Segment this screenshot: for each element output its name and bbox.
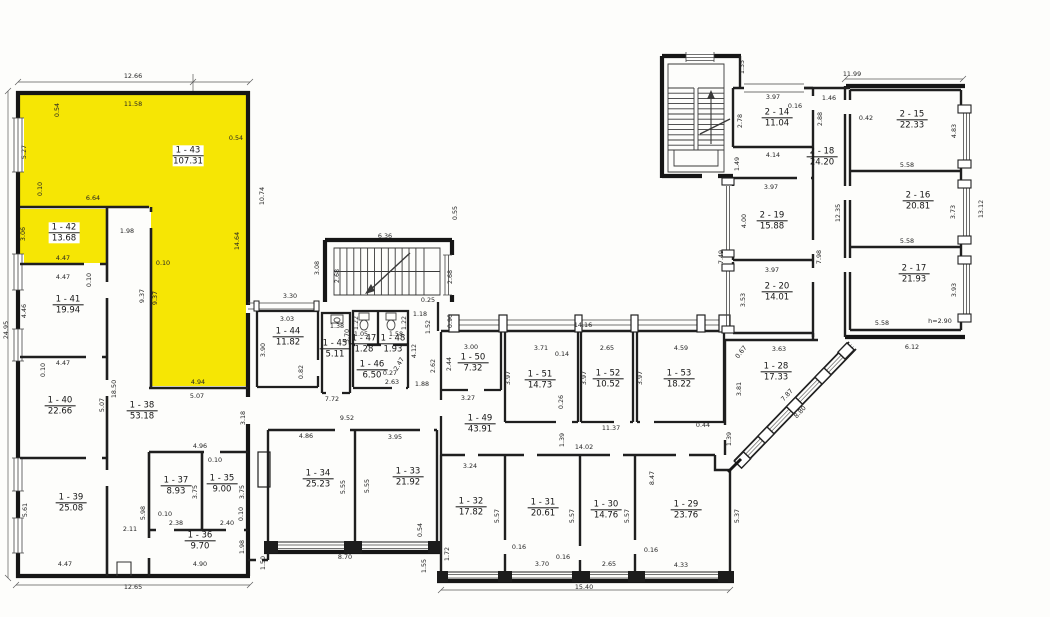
dimension-text: 2.62 [429, 359, 437, 373]
dimension-text: 0.42 [859, 114, 873, 122]
room-2-20-label: 2 - 2014.01 [762, 281, 793, 302]
dimension-text: 0.67 [733, 344, 748, 360]
dimension-text: 7.49 [717, 250, 725, 264]
dimension-text: 3.95 [388, 433, 402, 441]
dimension-text: 4.90 [193, 560, 207, 568]
floor-plan: 1 - 43107.311 - 4213.681 - 4119.941 - 40… [0, 0, 1050, 617]
dimension-text: 4.46 [20, 304, 28, 318]
dimension-text: 3.00 [464, 343, 478, 351]
room-1-28-label: 1 - 2817.33 [761, 361, 792, 382]
dimension-text: 3.81 [735, 382, 743, 396]
dimension-text: 5.58 [900, 237, 914, 245]
dimension-text: 10.74 [258, 187, 266, 205]
dimension-text: 4.12 [410, 344, 418, 358]
dimension-text: 2.11 [123, 525, 137, 533]
dimension-text: 1.05 [354, 330, 368, 338]
dimension-text: 1.39 [725, 432, 733, 446]
dimension-text: 1.52 [424, 320, 432, 334]
dimension-text: 3.30 [283, 292, 297, 300]
dimension-text: 4.59 [674, 344, 688, 352]
dimension-text: 5.58 [875, 319, 889, 327]
dimension-text: 0.44 [696, 421, 710, 429]
room-1-42-label: 1 - 4213.68 [49, 222, 80, 243]
room-1-53-label: 1 - 5318.22 [664, 368, 695, 389]
dimension-text: 1.98 [120, 227, 134, 235]
dimension-text: 3.97 [636, 371, 644, 385]
dimension-text: 0.10 [237, 507, 245, 521]
room-2-17-label: 2 - 1721.93 [899, 263, 930, 284]
room-1-44-label: 1 - 4411.82 [273, 326, 304, 347]
dimension-text: 1.72 [443, 547, 451, 561]
dimension-text: 5.57 [568, 509, 576, 523]
dimension-text: 14.16 [574, 321, 592, 329]
room-1-38-label: 1 - 3853.18 [127, 400, 158, 421]
dimension-text: 2.88 [816, 112, 824, 126]
dimension-text: 3.73 [949, 205, 957, 219]
dimension-text: 14.64 [233, 232, 241, 250]
dimension-text: 4.47 [56, 254, 70, 262]
dimension-text: 1.38 [330, 322, 344, 330]
room-1-41-label: 1 - 4119.94 [53, 294, 84, 315]
dimension-text: 0.26 [557, 395, 565, 409]
dimension-text: 2.38 [169, 519, 183, 527]
dimension-text: 3.97 [765, 266, 779, 274]
dimension-text: 4.33 [674, 561, 688, 569]
dimension-text: 12.66 [124, 72, 142, 80]
dimension-text: 0.10 [208, 456, 222, 464]
dimension-text: 2.65 [602, 560, 616, 568]
dimension-text: 1.46 [822, 94, 836, 102]
room-1-52-label: 1 - 5210.52 [593, 368, 624, 389]
dimension-text: 3.24 [463, 462, 477, 470]
room-1-31-label: 1 - 3120.61 [528, 497, 559, 518]
dimension-text: 0.27 [383, 369, 397, 377]
room-1-35-label: 1 - 359.00 [207, 473, 238, 494]
dimension-text: 5.55 [363, 479, 371, 493]
room-2-15-label: 2 - 1522.33 [897, 109, 928, 130]
room-1-39-label: 1 - 3925.08 [56, 492, 87, 513]
dimension-text: 4.83 [950, 124, 958, 138]
dimension-text: 2.44 [445, 357, 453, 371]
room-1-40-label: 1 - 4022.66 [45, 395, 76, 416]
dimension-text: 18.50 [110, 380, 118, 398]
dimension-text: 4.00 [740, 214, 748, 228]
dimension-text: 8.47 [648, 471, 656, 485]
dimension-text: 12.35 [834, 204, 842, 222]
dimension-text: 13.12 [977, 200, 985, 218]
dimension-text: 6.64 [86, 194, 100, 202]
dimension-text: 7.72 [325, 395, 339, 403]
dimension-text: 0.14 [555, 350, 569, 358]
dimension-text: 0.10 [158, 510, 172, 518]
dimension-text: 1.22 [400, 316, 408, 330]
dimension-text: 7.98 [815, 250, 823, 264]
dimension-text: 5.07 [98, 398, 106, 412]
dimension-text: 0.16 [788, 102, 802, 110]
dimension-text: 14.02 [575, 443, 593, 451]
dimension-text: 5.58 [900, 161, 914, 169]
dimension-text: 11.99 [843, 70, 861, 78]
dimension-text: 2.68 [446, 270, 454, 284]
dimension-text: 5.61 [21, 503, 29, 517]
dimension-text: 3.97 [764, 183, 778, 191]
dimension-text: 11.58 [124, 100, 142, 108]
dimension-text: 1.58 [389, 330, 403, 338]
room-2-16-label: 2 - 1620.81 [903, 190, 934, 211]
room-1-50-label: 1 - 507.32 [458, 352, 489, 373]
dimension-text: 4.47 [58, 560, 72, 568]
dimension-text: 0.10 [36, 182, 44, 196]
dimension-text: 4.86 [299, 432, 313, 440]
dimension-text: 3.75 [191, 485, 199, 499]
dimension-text: 3.27 [461, 394, 475, 402]
dimension-text: 24.95 [2, 321, 10, 339]
dimension-text: 3.70 [535, 560, 549, 568]
dimension-text: 3.18 [239, 411, 247, 425]
dimension-text: 6.36 [378, 232, 392, 240]
dimension-text: 0.16 [556, 553, 570, 561]
dimension-text: h=2.90 [928, 317, 952, 325]
dimension-text: 1.18 [413, 310, 427, 318]
dimension-text: 3.93 [950, 283, 958, 297]
dimension-text: 9.37 [138, 289, 146, 303]
room-1-36-label: 1 - 369.70 [185, 530, 216, 551]
dimension-text: 0.54 [229, 134, 243, 142]
dimension-text: 0.25 [421, 296, 435, 304]
dimension-text: 5.07 [190, 392, 204, 400]
room-1-32-label: 1 - 3217.82 [456, 496, 487, 517]
room-1-37-label: 1 - 378.93 [161, 475, 192, 496]
dimension-text: 2.68 [333, 269, 341, 283]
dimension-text: 2.78 [736, 114, 744, 128]
labels-layer: 1 - 43107.311 - 4213.681 - 4119.941 - 40… [0, 0, 1050, 617]
dimension-text: 4.96 [193, 442, 207, 450]
dimension-text: 4.94 [191, 378, 205, 386]
room-1-30-label: 1 - 3014.76 [591, 499, 622, 520]
dimension-text: 3.97 [504, 371, 512, 385]
room-2-19-label: 2 - 1915.88 [757, 210, 788, 231]
dimension-text: 2.65 [600, 344, 614, 352]
dimension-text: 9.52 [340, 414, 354, 422]
dimension-text: 2.40 [220, 519, 234, 527]
dimension-text: 8.70 [338, 553, 352, 561]
dimension-text: 3.08 [313, 261, 321, 275]
dimension-text: 0.16 [512, 543, 526, 551]
dimension-text: 1.39 [558, 433, 566, 447]
dimension-text: 1.49 [733, 157, 741, 171]
room-1-51-label: 1 - 5114.73 [525, 369, 556, 390]
dimension-text: 6.12 [905, 343, 919, 351]
dimension-text: 9.37 [151, 291, 159, 305]
dimension-text: 4.14 [766, 151, 780, 159]
dimension-text: 1.35 [738, 60, 746, 74]
dimension-text: 3.63 [772, 345, 786, 353]
dimension-text: 0.10 [85, 273, 93, 287]
dimension-text: 15.40 [575, 583, 593, 591]
dimension-text: 0.54 [416, 523, 424, 537]
dimension-text: 2.63 [385, 378, 399, 386]
dimension-text: 0.82 [297, 365, 305, 379]
dimension-text: 5.98 [139, 506, 147, 520]
room-1-33-label: 1 - 3321.92 [393, 466, 424, 487]
dimension-text: 3.06 [19, 227, 27, 241]
dimension-text: 11.37 [602, 424, 620, 432]
dimension-text: 3.97 [580, 371, 588, 385]
dimension-text: 3.71 [534, 344, 548, 352]
dimension-text: 5.37 [733, 509, 741, 523]
dimension-text: 0.55 [451, 206, 459, 220]
dimension-text: 5.57 [493, 509, 501, 523]
dimension-text: 1.55 [420, 559, 428, 573]
dimension-text: 0.10 [156, 259, 170, 267]
dimension-text: 1.88 [415, 380, 429, 388]
dimension-text: 0.16 [644, 546, 658, 554]
dimension-text: 4.47 [56, 359, 70, 367]
dimension-text: 7.87 [779, 387, 795, 403]
room-1-34-label: 1 - 3425.23 [303, 468, 334, 489]
dimension-text: 0.54 [53, 103, 61, 117]
room-2-18-label: 2 - 1824.20 [807, 146, 838, 167]
dimension-text: 1.50 [259, 556, 267, 570]
dimension-text: 3.70 [343, 329, 351, 343]
dimension-text: 1.98 [238, 540, 246, 554]
dimension-text: 8.80 [792, 404, 808, 420]
dimension-text: 3.03 [280, 315, 294, 323]
dimension-text: 0.90 [446, 314, 454, 328]
dimension-text: 3.75 [238, 485, 246, 499]
dimension-text: 3.90 [259, 343, 267, 357]
dimension-text: 5.27 [20, 145, 28, 159]
dimension-text: 4.47 [56, 273, 70, 281]
room-1-43-label: 1 - 43107.31 [173, 145, 204, 166]
room-1-29-label: 1 - 2923.76 [671, 499, 702, 520]
dimension-text: 1.22 [352, 316, 360, 330]
dimension-text: 3.53 [739, 293, 747, 307]
dimension-text: 3.97 [766, 93, 780, 101]
dimension-text: 0.10 [39, 363, 47, 377]
dimension-text: 5.57 [623, 509, 631, 523]
dimension-text: 12.65 [124, 583, 142, 591]
room-2-14-label: 2 - 1411.04 [762, 107, 793, 128]
room-1-49-label: 1 - 4943.91 [465, 413, 496, 434]
dimension-text: 5.55 [339, 480, 347, 494]
